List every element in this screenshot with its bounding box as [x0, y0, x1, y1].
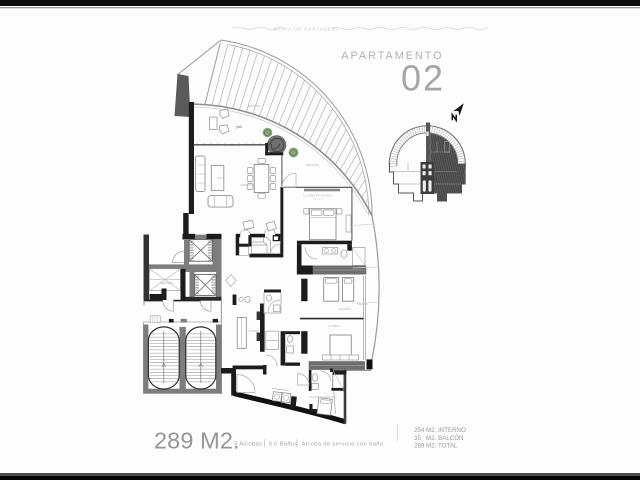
- svg-text:02: 02: [401, 58, 445, 99]
- svg-text:BAHIA DE CARTAGENA: BAHIA DE CARTAGENA: [274, 27, 340, 32]
- svg-text:289 M2. TOTAL: 289 M2. TOTAL: [414, 442, 458, 449]
- svg-text:289 M2.: 289 M2.: [154, 427, 240, 453]
- svg-text:COCINA: COCINA: [249, 329, 259, 333]
- svg-text:BALCON: BALCON: [307, 163, 319, 167]
- svg-text:BALCON: BALCON: [248, 104, 260, 108]
- svg-text:3 Alcobas: 3 Alcobas: [234, 442, 262, 448]
- svg-text:ALCOBA DE SERVICIO: ALCOBA DE SERVICIO: [310, 396, 337, 399]
- svg-text:SALA: SALA: [217, 176, 224, 180]
- svg-text:ALCOBA 2: ALCOBA 2: [328, 324, 341, 328]
- svg-text:3.5 Baños: 3.5 Baños: [269, 442, 298, 448]
- svg-text:5.20 x 4.30: 5.20 x 4.30: [313, 199, 324, 201]
- svg-text:Alcoba de servicio con baño: Alcoba de servicio con baño: [302, 442, 384, 448]
- svg-text:BALCON: BALCON: [357, 302, 368, 306]
- svg-text:DEPOSITO: DEPOSITO: [160, 281, 173, 285]
- svg-text:ALCOBA 3: ALCOBA 3: [339, 307, 352, 311]
- svg-text:35 M2. BALCÓN: 35 M2. BALCÓN: [414, 435, 464, 442]
- svg-text:254 M2. INTERNO: 254 M2. INTERNO: [414, 427, 466, 434]
- svg-text:ALCOBA PRINCIPAL: ALCOBA PRINCIPAL: [303, 194, 333, 198]
- svg-text:COMEDOR: COMEDOR: [240, 183, 254, 187]
